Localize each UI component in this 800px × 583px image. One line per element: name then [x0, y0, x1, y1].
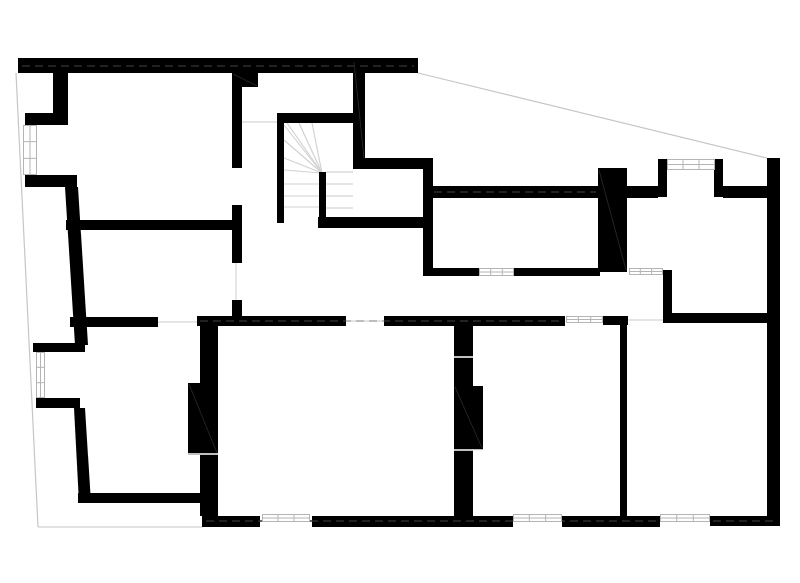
window-south-2 — [513, 515, 562, 522]
boundary-layer — [16, 73, 767, 527]
spine-wall-east-3 — [723, 186, 767, 198]
interior-wall-vertical-a — [232, 73, 242, 168]
exterior-wall-left-upper — [53, 73, 68, 116]
window-spine — [566, 317, 603, 323]
stair-wall-left — [277, 113, 284, 223]
wall-vertical-e — [663, 270, 672, 318]
stair-wall-bottom — [318, 217, 432, 228]
stair-wall-top — [277, 113, 363, 123]
window-left-lower — [37, 352, 45, 398]
exterior-wall-left-jog-2 — [25, 175, 77, 187]
spine-wall-east-2 — [627, 186, 658, 198]
exterior-wall-right — [767, 158, 780, 526]
interior-wall-vertical-d — [423, 158, 433, 275]
interior-wall-horizontal-left — [66, 220, 237, 230]
exterior-wall-left-lower — [74, 408, 91, 503]
roof-edge-diagonal — [418, 73, 767, 158]
stair-stringer — [319, 172, 326, 218]
floor-plan — [0, 0, 800, 583]
partition-wall-right — [620, 324, 627, 516]
spine-wall-main-4 — [603, 316, 628, 325]
window-south-3 — [660, 515, 710, 522]
room-wall-bottom-left — [78, 493, 218, 503]
floor-plan-canvas — [0, 0, 800, 583]
detail-layer — [22, 62, 776, 521]
exterior-wall-left-jog-4 — [36, 398, 80, 408]
wall-mid-horizontal-1 — [423, 268, 479, 276]
window-mid-1 — [479, 269, 514, 276]
window-mid-2 — [629, 269, 663, 275]
interior-wall-vertical-b — [232, 205, 242, 263]
stair-landing-wall — [353, 158, 433, 169]
window-bay-north — [667, 160, 715, 170]
exterior-wall-left-jog-1 — [25, 113, 68, 125]
window-south-1 — [262, 515, 310, 522]
stair-layer — [284, 123, 353, 208]
exterior-wall-left-mid — [65, 187, 88, 345]
window-left-upper — [24, 125, 37, 175]
bay-wall-right — [714, 159, 723, 197]
bay-wall-left — [658, 159, 667, 197]
wall-right-room-top — [663, 313, 780, 323]
wall-mid-horizontal-2 — [514, 268, 600, 276]
walls-layer — [18, 58, 780, 527]
